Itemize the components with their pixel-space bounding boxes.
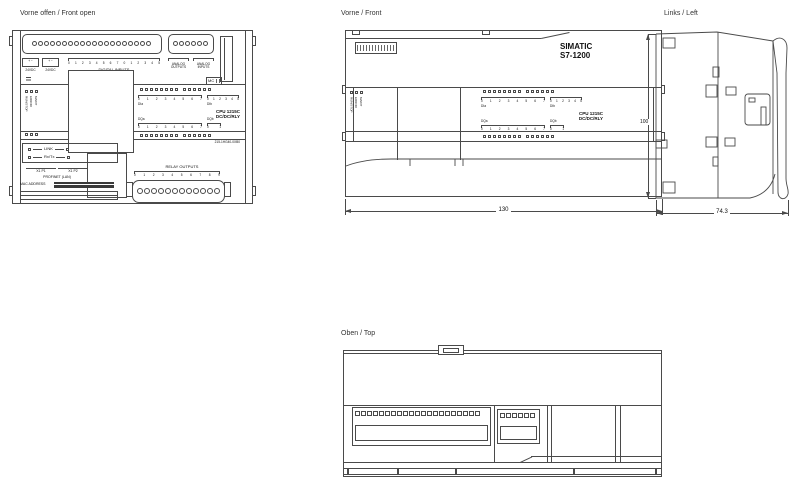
band-line [20, 139, 68, 140]
cover-seams [410, 159, 463, 166]
dq-led [170, 134, 173, 137]
di-led [513, 90, 516, 93]
terminal-screw [86, 41, 91, 46]
terminal-square [433, 411, 438, 416]
di-led [531, 90, 534, 93]
tick: 3 [225, 98, 227, 101]
link-led [66, 148, 69, 151]
terminal-square [361, 411, 366, 416]
di-led [546, 90, 549, 93]
mount-ear [252, 186, 256, 196]
tick: 1 [490, 100, 492, 103]
band-line [134, 84, 245, 85]
terminal-square [524, 413, 529, 418]
ground-icon [26, 77, 31, 82]
tick: 0 [124, 62, 126, 65]
latch-detail [713, 157, 718, 166]
di-led [508, 90, 511, 93]
dia-ticks: 01234567 [138, 98, 202, 101]
dq-led [536, 135, 539, 138]
terminal-screw [214, 188, 220, 194]
terminal-screw [110, 41, 115, 46]
dq-led [551, 135, 554, 138]
status-led-label: ERROR [29, 96, 33, 111]
dq-led [160, 134, 163, 137]
bottom-curve [750, 174, 775, 198]
rxtx-led [28, 156, 31, 159]
tick: 0 [207, 98, 209, 101]
terminal-block-main-base [355, 425, 488, 441]
di-led [536, 90, 539, 93]
rxtx-led [67, 156, 70, 159]
dqa-ticks: 01234567 [138, 126, 202, 129]
dq-led [498, 135, 501, 138]
dqb-ticks: 01 [207, 126, 221, 129]
dq-led [208, 134, 211, 137]
di-led [193, 88, 196, 91]
latch-detail [656, 140, 667, 148]
top-edge-line [343, 353, 438, 354]
dqb-ticks: 01 [550, 128, 564, 131]
tick: 1 [490, 128, 492, 131]
dib-label: DIb [207, 103, 212, 106]
tick: 4 [174, 126, 176, 129]
port1-label: X1 P1 [26, 170, 56, 174]
terminal-screw [165, 188, 171, 194]
dqa-ticks: 01234567 [481, 128, 545, 131]
di-led [188, 88, 191, 91]
rail-tick [655, 468, 657, 475]
tick: 5 [580, 100, 582, 103]
band-line [345, 141, 662, 142]
dq-led-row [483, 135, 554, 138]
relay-terminal-circles [137, 188, 220, 194]
dq-led [483, 135, 486, 138]
terminal-square [355, 411, 360, 416]
link-indicator-box [22, 143, 118, 163]
dq-led [150, 134, 153, 137]
terminal-screw [32, 41, 37, 46]
tick: 1 [130, 62, 132, 65]
drawing-sheet: Vorne offen / Front open Vorne / Front L… [0, 0, 800, 488]
analog-inputs-label: ANALOG INPUTS [192, 63, 215, 70]
dq-led [165, 134, 168, 137]
terminal-squares-main [355, 411, 480, 416]
di-led [160, 88, 163, 91]
tick: 1 [147, 126, 149, 129]
tick: 3 [165, 98, 167, 101]
left-title: Links / Left [664, 10, 698, 17]
di-led [526, 90, 529, 93]
di-led [208, 88, 211, 91]
tick: 1 [147, 98, 149, 101]
top-title: Oben / Top [341, 330, 375, 337]
terminal-square [518, 413, 523, 418]
di-led [155, 88, 158, 91]
terminal-screw [137, 188, 143, 194]
tick: 5 [182, 98, 184, 101]
dqa-label: DQa [481, 120, 488, 123]
status-led-labels: RUN/STOPERRORMAINT [24, 96, 37, 111]
section-divider [551, 405, 552, 462]
di-led [183, 88, 186, 91]
din-rail-bar [343, 468, 662, 475]
aux-led [25, 133, 28, 136]
width-dimension: 130 [345, 207, 662, 213]
link-dash [33, 149, 42, 150]
di-led [145, 88, 148, 91]
rxtx-dash [56, 157, 65, 158]
terminal-screw [38, 41, 43, 46]
section-divider [547, 405, 548, 462]
port2-label: X1 P2 [58, 170, 88, 174]
terminal-screw [80, 41, 85, 46]
terminal-square [457, 411, 462, 416]
dq-led [503, 135, 506, 138]
relay-outputs-label: RELAY OUTPUTS [152, 165, 212, 169]
terminal-screw [200, 188, 206, 194]
terminal-screw [151, 188, 157, 194]
di-led [170, 88, 173, 91]
tick: 6 [191, 98, 193, 101]
latch-detail [726, 87, 736, 95]
connector-cover-line [224, 38, 225, 80]
status-led [35, 90, 38, 93]
cover-edge [346, 159, 661, 166]
mount-ear [9, 186, 13, 196]
link-dash [55, 149, 64, 150]
tick: 5 [182, 126, 184, 129]
di-led [198, 88, 201, 91]
terminal-screw [134, 41, 139, 46]
tick: 7 [543, 128, 545, 131]
ledge-line [531, 456, 662, 457]
link-led [28, 148, 31, 151]
memory-card-stripes [216, 79, 220, 83]
dq-led [488, 135, 491, 138]
di-led-row [483, 90, 554, 93]
connector-cover [220, 36, 233, 82]
top-view [343, 338, 665, 484]
terminal-square [409, 411, 414, 416]
terminal-square [439, 411, 444, 416]
cover-top-line [345, 38, 541, 39]
rxtx-label: Rx/Tx [44, 155, 54, 159]
top-edge-line [464, 353, 662, 354]
tick: 0 [550, 100, 552, 103]
di-led [483, 90, 486, 93]
tick: 0 [481, 128, 483, 131]
dqb-label: DQb [550, 120, 557, 123]
terminal-square [445, 411, 450, 416]
latch-detail [706, 85, 717, 97]
tick: 3 [89, 62, 91, 65]
di-led [140, 88, 143, 91]
terminal-square [500, 413, 505, 418]
di-led [493, 90, 496, 93]
band-line [20, 131, 68, 132]
dib-label: DIb [550, 105, 555, 108]
di-terminal-ticks: 01234567012345 [68, 62, 160, 65]
di-led [488, 90, 491, 93]
tick: 6 [534, 128, 536, 131]
dq-led [175, 134, 178, 137]
tick: 4 [231, 98, 233, 101]
side-profile [640, 28, 796, 228]
status-led-label: RUN/STOP [349, 97, 353, 112]
terminal-screw [128, 41, 133, 46]
di-led [498, 90, 501, 93]
terminal-screw [158, 188, 164, 194]
tick: 5 [525, 128, 527, 131]
terminal-square [427, 411, 432, 416]
status-led-labels: RUN/STOPERRORMAINT [349, 97, 362, 112]
di-led [503, 90, 506, 93]
depth-dimension: 74.3 [656, 209, 788, 215]
tick: 1 [219, 126, 221, 129]
di-led [518, 90, 521, 93]
dq-led [541, 135, 544, 138]
dqa-label: DQa [138, 118, 145, 121]
dq-led [531, 135, 534, 138]
terminal-square [469, 411, 474, 416]
tick: 4 [574, 100, 576, 103]
height-dim-line [648, 34, 649, 198]
dq-led [140, 134, 143, 137]
tick: 1 [213, 98, 215, 101]
tick: 7 [200, 98, 202, 101]
terminal-screw [62, 41, 67, 46]
terminal-screw [179, 188, 185, 194]
terminal-screw [144, 188, 150, 194]
terminal-screw [179, 41, 184, 46]
dia-label: DIa [481, 105, 486, 108]
status-led [25, 90, 28, 93]
tick: 3 [508, 100, 510, 103]
tick: 0 [138, 126, 140, 129]
terminal-screw [193, 188, 199, 194]
terminal-square [391, 411, 396, 416]
tick: 2 [153, 174, 155, 177]
tick: 2 [562, 100, 564, 103]
clip-tab [749, 98, 755, 102]
di-led-row [140, 88, 211, 91]
tick: 7 [200, 126, 202, 129]
band-line [345, 87, 662, 88]
tick: 0 [68, 62, 70, 65]
tick: 1 [143, 174, 145, 177]
dib-ticks: 012345 [550, 100, 582, 103]
mac-label: MAC ADDRESS [20, 183, 45, 187]
brand-line2: S7-1200 [560, 52, 590, 60]
tick: 4 [517, 128, 519, 131]
tick: 4 [96, 62, 98, 65]
dq-led [145, 134, 148, 137]
rxtx-row: Rx/Tx [28, 155, 70, 159]
dq-led [546, 135, 549, 138]
tick: 2 [156, 126, 158, 129]
terminal-screw [50, 41, 55, 46]
terminal-screw [104, 41, 109, 46]
aux-led [30, 133, 33, 136]
dq-led [198, 134, 201, 137]
latch-detail [663, 182, 675, 193]
latch-detail [761, 107, 766, 125]
di-led [175, 88, 178, 91]
tick: 2 [219, 98, 221, 101]
center-module [68, 70, 134, 153]
terminal-screw [56, 41, 61, 46]
terminal-screw [191, 41, 196, 46]
terminal-square [530, 413, 535, 418]
terminal-square [373, 411, 378, 416]
di-led [541, 90, 544, 93]
tick: 0 [207, 126, 209, 129]
dq-led [183, 134, 186, 137]
band-line [134, 131, 245, 132]
terminal-screw [186, 188, 192, 194]
rail-tick [397, 468, 399, 475]
tick: 4 [151, 62, 153, 65]
di-led [165, 88, 168, 91]
section-divider [494, 405, 495, 462]
clip-tab-inner [443, 348, 459, 353]
front-view: SIMATIC S7-1200 RUN/STOPERRORMAINT 01234… [345, 28, 663, 228]
terminal-square [397, 411, 402, 416]
analog-outputs-label: ANALOG OUTPUTS [167, 63, 190, 70]
relay-ticks: 0123456789 [134, 174, 220, 177]
power-label-1: 24VDC [22, 69, 39, 72]
terminal-square [415, 411, 420, 416]
dq-led [188, 134, 191, 137]
terminal-square [379, 411, 384, 416]
terminal-circles-aux [173, 41, 208, 46]
di-led [551, 90, 554, 93]
terminal-screw [98, 41, 103, 46]
tick: 2 [156, 98, 158, 101]
tick: 2 [137, 62, 139, 65]
terminal-screw [140, 41, 145, 46]
tick: 9 [218, 174, 220, 177]
tick: 3 [568, 100, 570, 103]
bottom-zone-line [343, 462, 662, 463]
aux-leds [25, 133, 38, 136]
tick: 1 [556, 100, 558, 103]
analog-out-bracket [168, 58, 189, 61]
right-rail-line [245, 30, 246, 204]
analog-in-bracket [193, 58, 214, 61]
front-open-title: Vorne offen / Front open [20, 10, 95, 17]
terminal-circles-main [32, 41, 151, 46]
terminal-screw [92, 41, 97, 46]
status-leds [25, 90, 38, 93]
tick: 5 [525, 100, 527, 103]
top-edge [656, 32, 773, 41]
terminal-screw [116, 41, 121, 46]
terminal-square [512, 413, 517, 418]
terminal-screw [68, 41, 73, 46]
mac-address-bar [54, 182, 114, 188]
tick: 2 [499, 100, 501, 103]
profinet-label: PROFINET (LAN) [26, 176, 88, 180]
terminal-screw [173, 41, 178, 46]
dq-led [518, 135, 521, 138]
rail-tick [455, 468, 457, 475]
tick: 4 [517, 100, 519, 103]
port-block-line [20, 195, 118, 196]
order-number: 215-1HG40-0XB0 [172, 141, 240, 144]
latch-detail [663, 38, 675, 48]
relay-end-cap [224, 182, 231, 197]
tick: 5 [181, 174, 183, 177]
terminal-square [463, 411, 468, 416]
tick: 1 [562, 128, 564, 131]
left-side-view: 100 74.3 [640, 28, 796, 233]
tick: 6 [190, 174, 192, 177]
band-line [20, 84, 68, 85]
status-leds [350, 91, 363, 94]
aux-led [35, 133, 38, 136]
dq-led [203, 134, 206, 137]
terminal-block-aux-base [500, 426, 537, 440]
memory-card-label: MC [208, 79, 214, 83]
terminal-square [403, 411, 408, 416]
latch-detail [725, 138, 735, 146]
status-led [350, 91, 353, 94]
terminal-square [421, 411, 426, 416]
di-led [150, 88, 153, 91]
terminal-square [367, 411, 372, 416]
tick: 5 [103, 62, 105, 65]
dq-led [493, 135, 496, 138]
mount-ear [9, 36, 13, 46]
tick: 8 [209, 174, 211, 177]
tick: 5 [237, 98, 239, 101]
dq-led [513, 135, 516, 138]
tick: 7 [199, 174, 201, 177]
rail-tick [347, 468, 349, 475]
dq-led [155, 134, 158, 137]
terminal-screw [203, 41, 208, 46]
power-marks: + − [42, 60, 59, 63]
status-led [30, 90, 33, 93]
top-tab [352, 30, 360, 35]
section-divider [620, 405, 621, 462]
dia-ticks: 01234567 [481, 100, 545, 103]
mount-ear [342, 132, 346, 141]
terminal-screw [146, 41, 151, 46]
tick: 4 [174, 98, 176, 101]
rxtx-dash [33, 157, 42, 158]
tick: 0 [134, 174, 136, 177]
terminal-screw [185, 41, 190, 46]
terminal-screw [44, 41, 49, 46]
dq-led [526, 135, 529, 138]
latch-detail [706, 137, 717, 147]
di-led [203, 88, 206, 91]
tick: 1 [75, 62, 77, 65]
status-led [355, 91, 358, 94]
terminal-squares-aux [500, 413, 535, 418]
power-label-2: 24VDC [42, 69, 59, 72]
terminal-square [475, 411, 480, 416]
tick: 3 [162, 174, 164, 177]
terminal-square [385, 411, 390, 416]
terminal-square [451, 411, 456, 416]
status-led [360, 91, 363, 94]
dq-led [193, 134, 196, 137]
tick: 3 [508, 128, 510, 131]
